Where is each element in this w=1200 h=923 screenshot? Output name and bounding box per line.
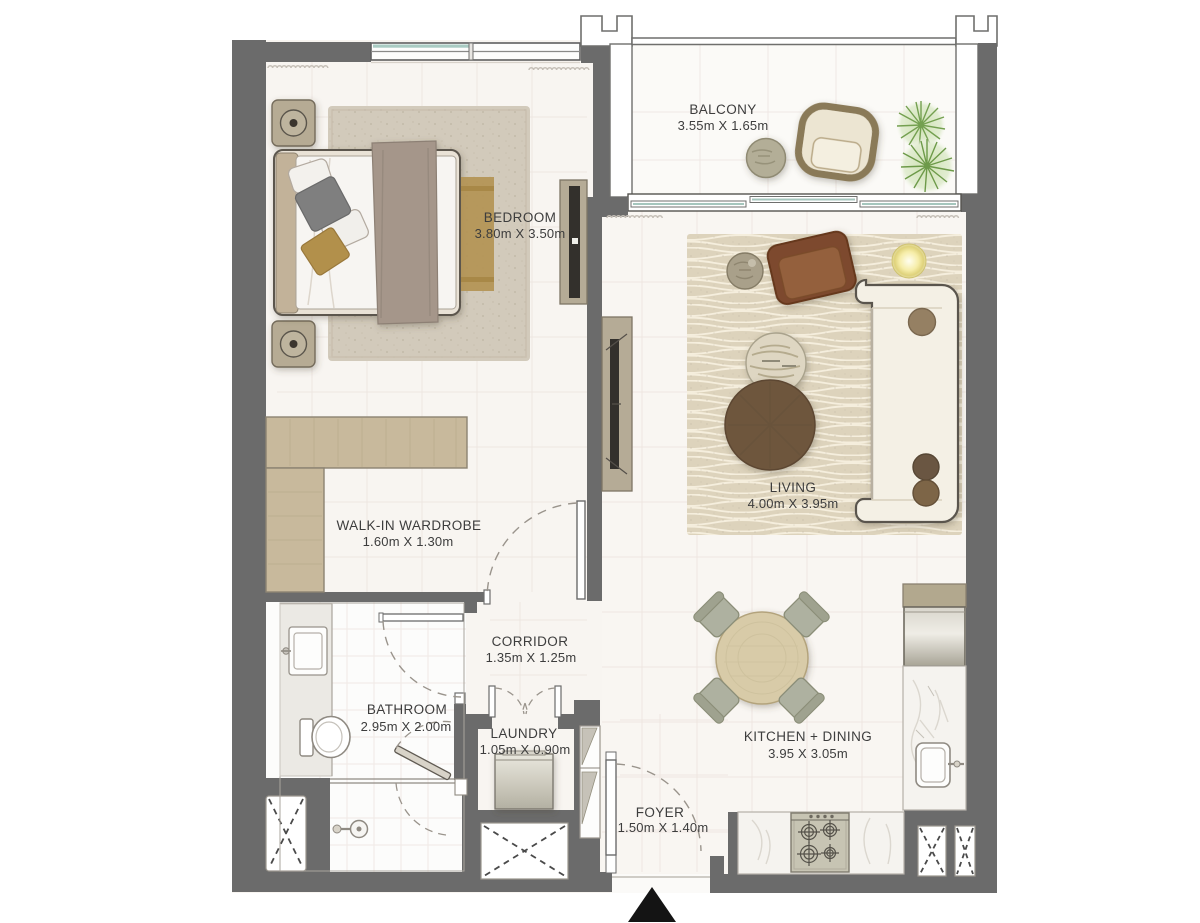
svg-text:4.00m X 3.95m: 4.00m X 3.95m	[748, 496, 839, 511]
svg-text:1.60m X 1.30m: 1.60m X 1.30m	[363, 534, 454, 549]
svg-text:3.95 X 3.05m: 3.95 X 3.05m	[768, 746, 848, 761]
svg-text:FOYER: FOYER	[636, 805, 685, 820]
svg-text:LAUNDRY: LAUNDRY	[490, 726, 557, 741]
svg-text:CORRIDOR: CORRIDOR	[492, 634, 569, 649]
svg-text:BALCONY: BALCONY	[689, 102, 756, 117]
svg-text:1.05m X 0.90m: 1.05m X 0.90m	[480, 742, 571, 757]
svg-text:WALK-IN WARDROBE: WALK-IN WARDROBE	[337, 518, 482, 533]
svg-text:1.50m X 1.40m: 1.50m X 1.40m	[618, 820, 709, 835]
svg-text:2.95m X 2.00m: 2.95m X 2.00m	[361, 719, 452, 734]
svg-text:1.35m X 1.25m: 1.35m X 1.25m	[486, 650, 577, 665]
svg-text:BEDROOM: BEDROOM	[484, 210, 557, 225]
svg-text:KITCHEN + DINING: KITCHEN + DINING	[744, 729, 872, 744]
svg-text:3.80m X 3.50m: 3.80m X 3.50m	[475, 226, 566, 241]
svg-text:LIVING: LIVING	[770, 480, 817, 495]
svg-text:3.55m X 1.65m: 3.55m X 1.65m	[678, 118, 769, 133]
svg-text:BATHROOM: BATHROOM	[367, 702, 447, 717]
